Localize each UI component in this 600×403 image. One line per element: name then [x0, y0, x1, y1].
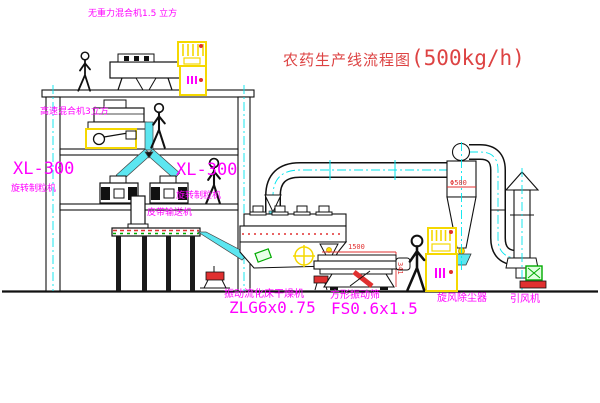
operator-figure — [78, 52, 90, 91]
dim-screen-length: 1500 — [348, 243, 365, 251]
title-text: 农药生产线流程图 — [283, 51, 411, 69]
fluid-bed-dryer-machine — [200, 206, 346, 290]
belt-conveyor-machine — [112, 228, 200, 291]
label-granulator-left-name: 旋转制粒机 — [11, 185, 56, 195]
label-gravity-mixer: 无重力混合机1.5 立方 — [88, 10, 177, 20]
label-high-speed-mixer: 高速混合机3立方 — [40, 108, 109, 118]
label-granulator-right-model: XL-300 — [176, 161, 237, 180]
label-granulator-right-name: 旋转制粒机 — [176, 192, 221, 202]
down-pipe — [128, 196, 148, 228]
diagram-title: 农药生产线流程图(500kg/h) — [283, 46, 525, 70]
title-capacity: (500kg/h) — [411, 46, 525, 70]
label-fan: 引风机 — [510, 294, 540, 305]
label-dryer-model: ZLG6x0.75 — [229, 299, 316, 317]
label-belt-conveyor: 皮带输送机 — [147, 209, 192, 219]
building-frame — [42, 90, 254, 291]
label-cyclone: 旋风除尘器 — [437, 293, 487, 304]
label-granulator-left-model: XL-300 — [13, 160, 74, 179]
dim-cyclone-diameter: Φ500 — [450, 179, 467, 187]
dim-screen-height: 341 — [396, 262, 404, 275]
process-flow-diagram: 农药生产线流程图(500kg/h) 无重力混合机1.5 立方 高速混合机3立方 … — [0, 0, 600, 403]
control-cabinet-top — [178, 42, 206, 95]
label-screen-model: FS0.6x1.5 — [331, 300, 418, 318]
exhaust-duct — [265, 160, 448, 218]
control-cabinet-right — [426, 228, 457, 291]
